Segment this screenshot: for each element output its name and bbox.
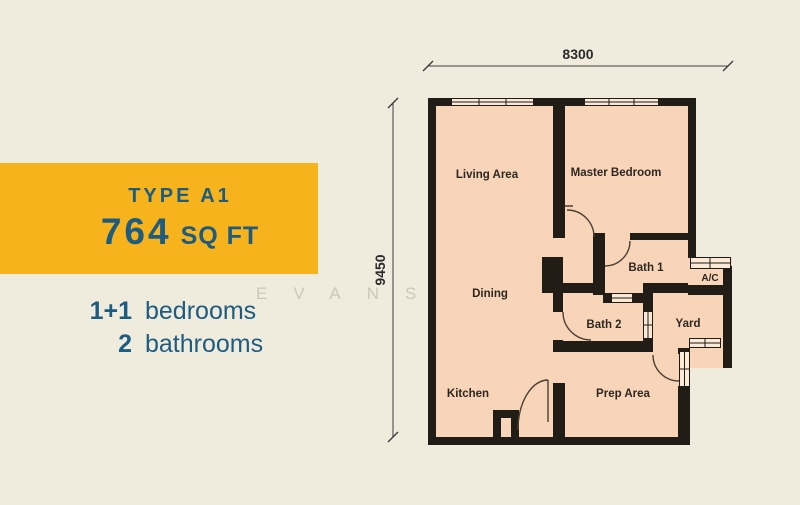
type-banner: TYPE A1 764 SQ FT (0, 163, 318, 274)
window-yard-bottom (690, 339, 721, 348)
room-label-master: Master Bedroom (571, 167, 662, 179)
bedrooms-count: 1+1 (50, 297, 132, 326)
dimension-width-text: 8300 (562, 46, 593, 62)
unit-size: 764 SQ FT (42, 211, 318, 253)
unit-size-value: 764 (101, 211, 172, 253)
bathrooms-label: bathrooms (145, 330, 280, 359)
watermark-text: EVANS (256, 284, 442, 303)
window-bath2-yard (644, 312, 653, 339)
dimension-left: 9450 (372, 98, 398, 442)
dimension-top: 8300 (423, 46, 733, 71)
floorplan-page: EVANS (0, 0, 800, 505)
bathrooms-count: 2 (50, 330, 132, 359)
unit-size-unit: SQ FT (181, 222, 260, 251)
bedrooms-label: bedrooms (145, 297, 280, 326)
room-label-prep: Prep Area (596, 388, 651, 400)
room-label-living: Living Area (456, 169, 519, 181)
window-master (585, 99, 659, 106)
window-bath2-vent (612, 294, 633, 303)
room-label-bath2: Bath 2 (586, 319, 621, 331)
room-label-dining: Dining (472, 288, 508, 300)
dimension-height-text: 9450 (372, 254, 388, 285)
window-living (452, 99, 534, 106)
window-prep-right (680, 352, 690, 387)
unit-specs: 1+1 bedrooms 2 bathrooms (50, 297, 280, 359)
room-label-bath1: Bath 1 (628, 262, 664, 274)
window-ac-louvre (691, 258, 731, 269)
unit-type-label: TYPE A1 (42, 185, 318, 208)
room-label-yard: Yard (676, 318, 701, 330)
room-label-ac: A/C (701, 273, 718, 284)
room-label-kitchen: Kitchen (447, 388, 489, 400)
